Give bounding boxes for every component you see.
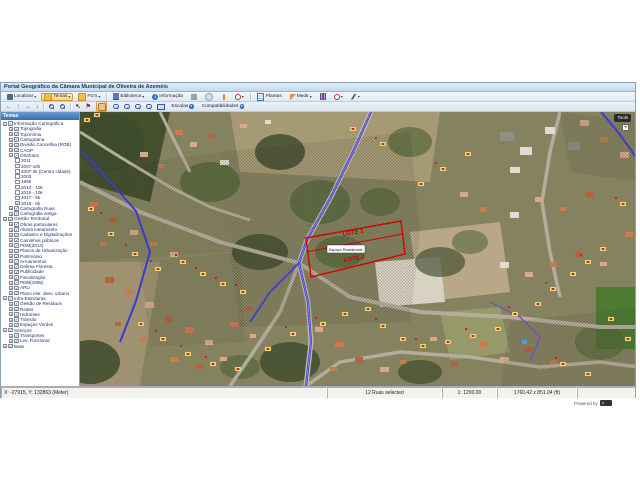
layer-label: Topografia bbox=[20, 126, 41, 131]
layer-label: 2018 - 5k bbox=[21, 201, 40, 206]
zoom-out-icon: − bbox=[60, 104, 66, 110]
chevron-down-icon: ▾ bbox=[34, 95, 36, 99]
informacao-button-label: Informação bbox=[159, 94, 183, 99]
layer-checkbox[interactable] bbox=[14, 249, 19, 254]
target-button[interactable]: ▾ bbox=[331, 93, 346, 101]
map-zoom-plus-button[interactable]: + bbox=[622, 124, 629, 131]
chevron-down-icon: ▾ bbox=[68, 95, 70, 99]
powered-by-text: Powered by bbox=[574, 401, 598, 406]
fgs-button-label: FG's bbox=[87, 94, 97, 99]
layer-checkbox[interactable] bbox=[14, 270, 19, 275]
layer-checkbox[interactable] bbox=[15, 169, 20, 174]
layer-checkbox[interactable] bbox=[14, 286, 19, 291]
folder-icon bbox=[44, 93, 52, 101]
settings-button[interactable]: ▾ bbox=[232, 93, 247, 101]
layer-label: Gestão de Resíduos bbox=[20, 301, 62, 306]
ruler-icon bbox=[290, 94, 296, 100]
layer-label: Defesa Floresta bbox=[20, 264, 52, 269]
layer-checkbox[interactable] bbox=[14, 132, 19, 137]
layer-checkbox[interactable] bbox=[14, 264, 19, 269]
pan-down-icon bbox=[36, 103, 39, 111]
layer-label: CAOP bbox=[20, 148, 33, 153]
layer-checkbox[interactable] bbox=[15, 190, 20, 195]
expand-icon[interactable]: + bbox=[3, 344, 7, 348]
layer-label: Gestão Territorial bbox=[14, 216, 49, 221]
layer-label: Infra-Estruturas bbox=[14, 296, 46, 301]
chevron-down-icon: ▾ bbox=[98, 95, 100, 99]
layer-checkbox[interactable] bbox=[14, 211, 19, 216]
biblioteca-button[interactable]: Biblioteca▾ bbox=[110, 93, 147, 101]
zoom-window-icon bbox=[113, 104, 119, 110]
folder-icon bbox=[78, 93, 86, 101]
expand-icon[interactable]: + bbox=[9, 334, 13, 338]
expand-icon[interactable]: + bbox=[9, 323, 13, 327]
layer-label: Informação Cartográfica bbox=[14, 121, 63, 126]
layer-label: Divisão Concelhia (ROB) bbox=[20, 142, 71, 147]
navigation-toolbar: +−Escalas▾Compatibilidades▾ bbox=[1, 102, 635, 112]
chevron-down-icon: ▾ bbox=[142, 95, 144, 99]
zoom-next-button[interactable] bbox=[144, 103, 153, 111]
target-icon bbox=[334, 94, 340, 100]
layer-tree-item[interactable]: +Divisão Concelhia (ROB) bbox=[1, 142, 79, 147]
layer-checkbox[interactable] bbox=[14, 143, 19, 148]
layer-checkbox[interactable] bbox=[15, 158, 20, 163]
layer-checkbox[interactable] bbox=[14, 233, 19, 238]
layer-checkbox[interactable] bbox=[14, 317, 19, 322]
expand-icon[interactable]: + bbox=[9, 281, 13, 285]
cursor-coordinates: X: -27915, Y: 132863 (Meter) bbox=[1, 387, 327, 399]
layer-label: Arruamentos bbox=[20, 259, 46, 264]
collapse-icon[interactable]: − bbox=[9, 153, 13, 157]
zoom-in-button[interactable]: + bbox=[47, 103, 56, 111]
zoom-window-button[interactable] bbox=[111, 103, 120, 111]
chart-icon bbox=[320, 93, 326, 100]
map-extent: 1760.42 x 851.04 (ft) bbox=[497, 387, 577, 399]
temas-button-label: Temas bbox=[53, 94, 67, 99]
expand-icon[interactable]: + bbox=[9, 132, 13, 136]
layer-label: Ortofotos bbox=[20, 153, 39, 158]
layer-checkbox[interactable] bbox=[15, 180, 20, 185]
fgs-button[interactable]: FG's▾ bbox=[75, 93, 103, 101]
layer-checkbox[interactable] bbox=[8, 344, 13, 349]
layer-label: Lev. Funcional bbox=[20, 338, 50, 343]
collapse-icon[interactable]: − bbox=[3, 122, 7, 126]
layer-checkbox[interactable] bbox=[15, 164, 20, 169]
compatibilidades-button[interactable]: Compatibilidades▾ bbox=[199, 103, 247, 111]
escalas-button-label: Escalas bbox=[171, 104, 188, 109]
library-icon bbox=[113, 93, 119, 100]
collapse-icon[interactable]: − bbox=[3, 296, 7, 300]
localizar-button[interactable]: Localizar▾ bbox=[4, 93, 39, 101]
print-button[interactable] bbox=[188, 93, 200, 101]
layer-checkbox[interactable] bbox=[14, 222, 19, 227]
layer-label: 2017 - 5k bbox=[21, 195, 40, 200]
pan-down-button[interactable] bbox=[34, 103, 40, 111]
plantas-button[interactable]: Plantas bbox=[254, 93, 285, 101]
layer-label: Espaços Verdes bbox=[20, 322, 53, 327]
layer-checkbox[interactable] bbox=[14, 227, 19, 232]
layer-label: Obras particulares bbox=[20, 222, 58, 227]
layer-checkbox[interactable] bbox=[14, 254, 19, 259]
toolbar-separator bbox=[70, 103, 71, 110]
chart-button[interactable] bbox=[317, 93, 329, 101]
flag-icon bbox=[86, 103, 91, 111]
chevron-down-icon: ▾ bbox=[310, 95, 312, 99]
layer-label: PDM(2013) bbox=[20, 243, 44, 248]
select-pointer-button[interactable] bbox=[74, 103, 82, 111]
medir-button[interactable]: Medir▾ bbox=[287, 93, 315, 101]
layer-checkbox[interactable] bbox=[8, 296, 13, 301]
expand-icon[interactable]: + bbox=[9, 206, 13, 210]
zone-label: Espaço Residencial bbox=[329, 248, 363, 252]
toolbar-separator bbox=[250, 93, 251, 100]
layer-checkbox[interactable] bbox=[15, 174, 20, 179]
marker-icon bbox=[223, 94, 226, 100]
info-icon: i bbox=[152, 94, 158, 100]
layer-label: Cartografia antiga bbox=[20, 211, 57, 216]
orthophoto-map: LOTE 1 LOTE 2 Espaço Residencial bbox=[80, 112, 635, 386]
medir-button-label: Medir bbox=[297, 94, 309, 99]
zoom-selection-button[interactable] bbox=[122, 103, 131, 111]
expand-icon[interactable]: + bbox=[9, 307, 13, 311]
layer-tree: −Informação Cartográfica+Topografia+Topo… bbox=[1, 120, 79, 386]
layer-checkbox[interactable] bbox=[14, 148, 19, 153]
layer-label: Trânsito bbox=[20, 317, 36, 322]
map-viewport[interactable]: LOTE 1 LOTE 2 Espaço Residencial Tools + bbox=[80, 112, 635, 386]
pan-hand-icon bbox=[98, 103, 106, 111]
layer-label: 1995 bbox=[21, 179, 31, 184]
chevron-down-icon: ▾ bbox=[189, 104, 194, 109]
status-bar: X: -27915, Y: 132863 (Meter) 12 Ruas sel… bbox=[1, 386, 635, 399]
expand-icon[interactable]: + bbox=[9, 249, 13, 253]
pan-up-button[interactable] bbox=[15, 103, 21, 111]
pan-up-icon bbox=[17, 103, 20, 111]
layer-checkbox[interactable] bbox=[8, 121, 13, 126]
layer-checkbox[interactable] bbox=[14, 312, 19, 317]
binoculars-icon bbox=[7, 94, 13, 100]
selection-status: 12 Ruas selected bbox=[327, 387, 442, 399]
pan-hand-button[interactable] bbox=[94, 103, 109, 111]
toolbar-separator bbox=[106, 93, 107, 100]
zoom-selection-icon bbox=[124, 104, 130, 110]
layer-checkbox[interactable] bbox=[14, 307, 19, 312]
layer-checkbox[interactable] bbox=[14, 333, 19, 338]
expand-icon[interactable]: + bbox=[9, 286, 13, 290]
title-bar: Portal Geográfico da Câmara Municipal de… bbox=[1, 83, 635, 92]
layer-checkbox[interactable] bbox=[15, 201, 20, 206]
application-window: Portal Geográfico da Câmara Municipal de… bbox=[0, 82, 636, 398]
chevron-down-icon: ▾ bbox=[240, 104, 245, 109]
marker-button[interactable] bbox=[218, 93, 230, 101]
full-extent-button[interactable] bbox=[155, 103, 166, 111]
layer-checkbox[interactable] bbox=[14, 275, 19, 280]
layer-label: Base bbox=[14, 344, 24, 349]
layer-checkbox[interactable] bbox=[14, 127, 19, 132]
compatibilidades-button-label: Compatibilidades bbox=[202, 104, 239, 109]
expand-icon[interactable]: + bbox=[9, 312, 13, 316]
layer-checkbox[interactable] bbox=[14, 153, 19, 158]
layer-checkbox[interactable] bbox=[14, 243, 19, 248]
layer-label: 2011 bbox=[21, 158, 31, 163]
collapse-icon[interactable]: − bbox=[3, 217, 7, 221]
chevron-down-icon: ▾ bbox=[242, 95, 244, 99]
layer-label: Cartografia Ruas bbox=[20, 206, 55, 211]
full-extent-icon bbox=[157, 104, 165, 111]
layer-checkbox[interactable] bbox=[14, 323, 19, 328]
main-area: Temas −Informação Cartográfica+Topografi… bbox=[1, 112, 635, 386]
expand-icon[interactable]: + bbox=[9, 291, 13, 295]
layer-label: Caminhos públicos bbox=[20, 238, 59, 243]
chevron-down-icon: ▾ bbox=[341, 95, 343, 99]
layer-label: Fiscalização bbox=[20, 275, 45, 280]
layer-tree-item[interactable]: +Base bbox=[1, 343, 79, 348]
pan-left-icon bbox=[6, 103, 12, 111]
powered-by-badge: Powered by bbox=[574, 400, 612, 406]
temas-button[interactable]: Temas▾ bbox=[41, 93, 73, 101]
layer-label: 2003 bbox=[21, 174, 31, 179]
globe-button[interactable] bbox=[202, 93, 216, 101]
escalas-button[interactable]: Escalas▾ bbox=[168, 103, 196, 111]
layer-label: Plano estr. desv. urbano bbox=[20, 291, 69, 296]
layer-checkbox[interactable] bbox=[8, 217, 13, 222]
zoom-plus-glyph: + bbox=[50, 103, 52, 108]
globe-icon bbox=[205, 93, 213, 101]
print-icon bbox=[191, 93, 197, 100]
layer-checkbox[interactable] bbox=[14, 291, 19, 296]
layer-label: Planos de Urbanização bbox=[20, 248, 68, 253]
layer-label: Hidrantes bbox=[20, 312, 40, 317]
expand-icon[interactable]: + bbox=[9, 233, 13, 237]
plantas-button-label: Plantas bbox=[266, 94, 282, 99]
document-icon bbox=[257, 93, 264, 101]
layer-label: Património bbox=[20, 254, 42, 259]
expand-icon[interactable]: + bbox=[9, 254, 13, 258]
layer-checkbox[interactable] bbox=[14, 301, 19, 306]
expand-icon[interactable]: + bbox=[9, 212, 13, 216]
zoom-in-icon: + bbox=[49, 104, 55, 110]
layer-label: Publicidade bbox=[20, 269, 44, 274]
layer-checkbox[interactable] bbox=[14, 339, 19, 344]
layer-checkbox[interactable] bbox=[14, 259, 19, 264]
zoom-out-button[interactable]: − bbox=[58, 103, 67, 111]
informacao-button[interactable]: iInformação bbox=[149, 93, 186, 101]
layers-sidebar: Temas −Informação Cartográfica+Topografi… bbox=[1, 112, 80, 386]
layer-label: Cadastro e Digitalizações bbox=[20, 232, 72, 237]
layer-checkbox[interactable] bbox=[14, 137, 19, 142]
zoom-previous-button[interactable] bbox=[133, 103, 142, 111]
pan-left-button[interactable] bbox=[4, 103, 13, 111]
layer-label: 2015 - 10k bbox=[21, 190, 43, 195]
gear-red-icon bbox=[235, 94, 241, 100]
localizar-button-label: Localizar bbox=[14, 94, 33, 99]
chevron-down-icon: ▾ bbox=[358, 95, 360, 99]
zoom-next-icon bbox=[146, 104, 152, 110]
expand-icon[interactable]: + bbox=[9, 275, 13, 279]
expand-icon[interactable]: + bbox=[9, 143, 13, 147]
map-tools-chip[interactable]: Tools bbox=[614, 114, 631, 122]
flag-button[interactable] bbox=[84, 103, 92, 111]
layer-checkbox[interactable] bbox=[15, 196, 20, 201]
layer-label: ARU bbox=[20, 285, 30, 290]
layer-label: Alvará loteamento bbox=[20, 227, 57, 232]
expand-icon[interactable]: + bbox=[9, 270, 13, 274]
layer-checkbox[interactable] bbox=[14, 280, 19, 285]
wrench-icon bbox=[351, 94, 357, 100]
vendor-logo bbox=[600, 400, 612, 406]
layer-checkbox[interactable] bbox=[14, 206, 19, 211]
layer-checkbox[interactable] bbox=[15, 185, 20, 190]
expand-icon[interactable]: + bbox=[9, 127, 13, 131]
layer-label: Cartograma bbox=[20, 137, 44, 142]
expand-icon[interactable]: + bbox=[9, 138, 13, 142]
layer-label: 2012 - 10k bbox=[21, 185, 43, 190]
status-spacer bbox=[577, 387, 635, 399]
expand-icon[interactable]: + bbox=[9, 243, 13, 247]
expand-icon[interactable]: + bbox=[9, 222, 13, 226]
expand-icon[interactable]: + bbox=[9, 302, 13, 306]
expand-icon[interactable]: + bbox=[9, 148, 13, 152]
sidebar-header: Temas bbox=[1, 112, 79, 120]
layer-label: 2007-2k (Centro cidade) bbox=[21, 169, 71, 174]
expand-icon[interactable]: + bbox=[9, 228, 13, 232]
toolbar-separator bbox=[43, 103, 44, 110]
layer-label: PDM(1995) bbox=[20, 280, 44, 285]
pan-right-button[interactable] bbox=[23, 103, 32, 111]
expand-icon[interactable]: + bbox=[9, 259, 13, 263]
tools-button[interactable]: ▾ bbox=[348, 93, 363, 101]
page-title: Portal Geográfico da Câmara Municipal de… bbox=[1, 84, 168, 90]
expand-icon[interactable]: + bbox=[9, 265, 13, 269]
layer-label: Serviços bbox=[14, 328, 32, 333]
layer-checkbox[interactable] bbox=[8, 328, 13, 333]
zoom-previous-icon bbox=[135, 104, 141, 110]
layer-label: Toponímia bbox=[20, 132, 41, 137]
layer-label: 2007-10k bbox=[21, 164, 40, 169]
expand-icon[interactable]: + bbox=[9, 318, 13, 322]
expand-icon[interactable]: + bbox=[9, 238, 13, 242]
layer-label: Redes bbox=[20, 307, 33, 312]
select-pointer-icon bbox=[76, 103, 81, 111]
layer-checkbox[interactable] bbox=[14, 238, 19, 243]
expand-icon[interactable]: + bbox=[9, 339, 13, 343]
map-scale: 1: 1200.00 bbox=[442, 387, 497, 399]
zoom-minus-glyph: − bbox=[61, 103, 63, 108]
layer-label: Transportes bbox=[20, 333, 44, 338]
pan-right-icon bbox=[25, 103, 31, 111]
biblioteca-button-label: Biblioteca bbox=[120, 94, 141, 99]
collapse-icon[interactable]: − bbox=[3, 328, 7, 332]
